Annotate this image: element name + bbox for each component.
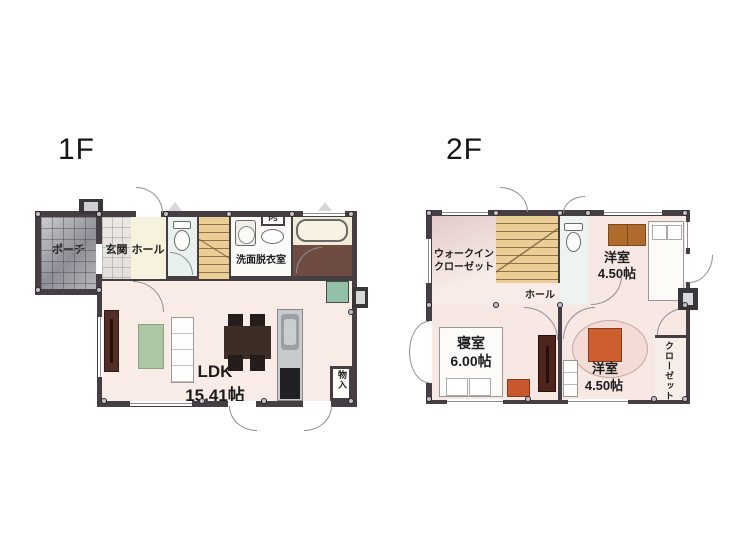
wic-left-window xyxy=(426,239,431,283)
pillow-icon xyxy=(469,378,491,396)
wic-top-window xyxy=(442,210,488,215)
wall-joint-dot xyxy=(36,212,40,216)
vent-mark-icon xyxy=(168,202,182,211)
wall-joint-dot xyxy=(558,303,562,307)
ldk-left-window xyxy=(98,317,103,377)
pillow-icon xyxy=(446,378,468,396)
west-top-right-window xyxy=(685,222,690,248)
floor-1-title: 1F xyxy=(58,133,95,167)
wall-joint-dot xyxy=(349,399,353,403)
tv-board-icon xyxy=(104,310,119,372)
dresser-icon xyxy=(608,224,646,246)
pillow-icon xyxy=(652,225,667,240)
ps-label: PS xyxy=(261,216,285,223)
toilet-icon xyxy=(174,230,190,251)
sofa-icon xyxy=(171,317,194,383)
bedroom-ext-door-arc-2 xyxy=(409,352,429,383)
stove-icon xyxy=(280,368,300,399)
bedroom-name-label: 寝室 xyxy=(445,333,497,353)
bedroom-area-label: 6.00帖 xyxy=(438,351,504,371)
toilet-tank-icon xyxy=(564,223,583,231)
wall-joint-dot xyxy=(683,397,687,401)
floorplan-page: 1F 2F ポーチ 玄関 ホール 物入 UP xyxy=(0,0,740,555)
toilet-top-door-arc xyxy=(563,196,585,213)
west-top-window xyxy=(604,210,662,215)
wall-joint-dot xyxy=(102,399,106,403)
pillow-icon xyxy=(667,225,682,240)
toilet-icon xyxy=(566,232,581,252)
wall-joint-dot xyxy=(526,397,530,401)
bedroom-ext-door-arc-1 xyxy=(409,321,429,352)
toilet-tank-icon xyxy=(173,221,191,229)
wall-joint-dot xyxy=(494,211,498,215)
stairs-1f xyxy=(199,217,229,279)
kitchen-counter-icon xyxy=(277,309,303,401)
wall-joint-dot xyxy=(652,397,656,401)
terrace-door-arc-2 xyxy=(304,406,332,431)
stairs-top-door-arc xyxy=(500,187,528,212)
dining-chair-icon xyxy=(250,355,265,371)
vent-mark-icon xyxy=(318,202,332,211)
wall-joint-dot xyxy=(349,310,353,314)
wall-joint-dot xyxy=(427,397,431,401)
wall-joint-dot xyxy=(164,212,168,216)
wall-joint-dot xyxy=(200,399,204,403)
west-top-ext-door-arc xyxy=(689,255,713,283)
wall-joint-dot xyxy=(262,399,266,403)
bathtub-icon xyxy=(296,219,348,242)
wall-joint-dot xyxy=(349,212,353,216)
wall-joint-dot xyxy=(290,212,294,216)
wall-joint-dot xyxy=(97,288,101,292)
wall-joint-dot xyxy=(36,288,40,292)
closet-label: クローゼット xyxy=(663,341,676,401)
floor-2-title: 2F xyxy=(446,133,483,167)
ps-box-exterior-2f xyxy=(678,288,698,310)
wall-joint-dot xyxy=(683,211,687,215)
wall-joint-dot xyxy=(683,303,687,307)
rug-icon xyxy=(138,324,164,369)
stairs-2f xyxy=(496,216,558,283)
wall-joint-dot xyxy=(227,212,231,216)
dining-chair-icon xyxy=(228,355,243,371)
ps-box-exterior-1f xyxy=(352,287,368,308)
refrigerator-icon xyxy=(326,281,349,303)
wall-joint-dot xyxy=(97,212,101,216)
washing-machine-icon xyxy=(235,220,256,246)
front-door-arc xyxy=(136,187,163,213)
bedroom-bottom-window xyxy=(447,399,503,404)
nightstand-icon xyxy=(507,379,530,397)
hall-2f-label: ホール xyxy=(520,286,560,301)
west-bottom-area-label: 4.50帖 xyxy=(572,375,636,394)
hall-1f-label: ホール xyxy=(129,241,167,257)
sink-icon xyxy=(261,229,284,244)
washroom-label: 洗面脱衣室 xyxy=(228,251,294,266)
wic-label-line2: クローゼット xyxy=(433,258,495,273)
wall-joint-dot xyxy=(494,303,498,307)
terrace-door-arc-1 xyxy=(229,406,257,431)
dresser-icon xyxy=(538,335,556,392)
ldk-bottom-window xyxy=(130,401,192,406)
wall-joint-dot xyxy=(427,303,431,307)
west-bottom-window xyxy=(568,399,628,404)
bath-window xyxy=(303,211,345,216)
wall-joint-dot xyxy=(586,211,590,215)
wall-joint-dot xyxy=(427,211,431,215)
storage-side-label: 物入 xyxy=(336,370,349,390)
wall-joint-dot xyxy=(558,211,562,215)
